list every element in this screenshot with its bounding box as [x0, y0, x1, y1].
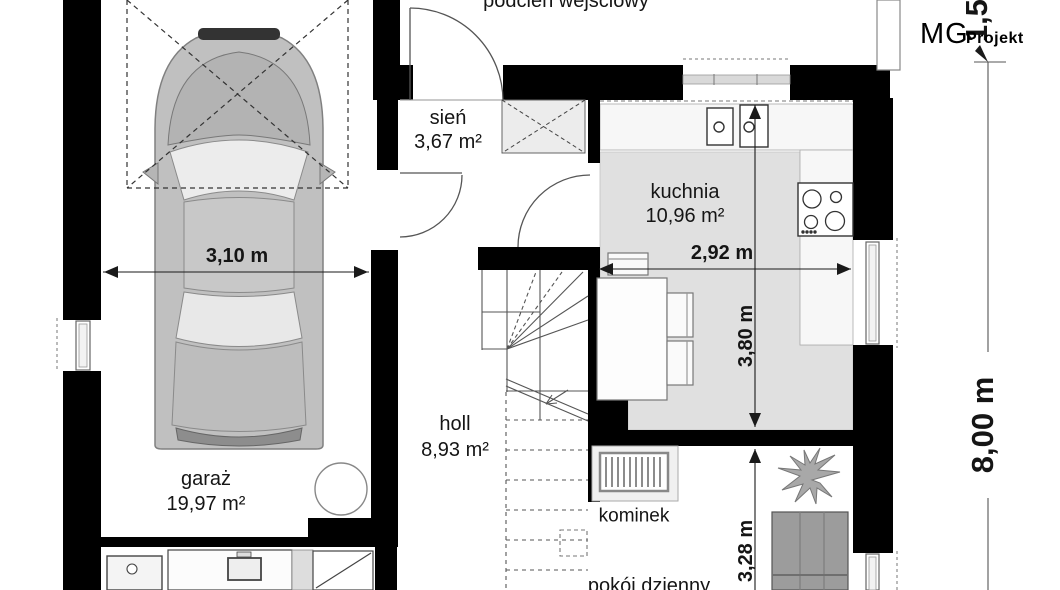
sofa: [772, 512, 848, 590]
utility-washer: [107, 556, 162, 590]
dim-kitchen-depth: 3,80 m: [735, 305, 757, 367]
room-label-kitchen: kuchnia: [651, 181, 720, 203]
logo-mg: MG: [920, 18, 969, 51]
car-windshield: [170, 140, 308, 200]
fireplace-symbol: [592, 446, 678, 501]
window-top-kitchen: [683, 59, 790, 85]
plant: [778, 448, 840, 504]
utility-counter-sink: [168, 550, 313, 590]
dashed-landing-box: [560, 530, 587, 556]
chair-top: [608, 253, 648, 275]
car-mirror-left: [143, 163, 158, 184]
logo-projekt: Projekt: [966, 30, 1024, 48]
crossed-shaft-box: [502, 100, 585, 153]
chair-right-2: [667, 341, 693, 385]
dim-kitchen-width: 2,92 m: [691, 242, 753, 264]
room-area-hall: 8,93 m²: [421, 439, 489, 461]
room-label-garage: garaż: [181, 468, 231, 490]
dim-garage-width: 3,10 m: [206, 245, 268, 267]
chair-right-1: [667, 293, 693, 337]
room-label-hall: holl: [439, 413, 470, 435]
floor-plan-drawing: [0, 0, 1060, 590]
entry-door: [400, 8, 505, 101]
stairs: [482, 270, 588, 590]
utility-shower: [313, 551, 373, 590]
car-rear-window: [176, 292, 302, 347]
kitchen-hob: [798, 183, 853, 236]
garage-door: [400, 173, 462, 237]
room-label-living: pokój dzienny: [588, 575, 710, 590]
table: [597, 278, 667, 400]
room-label-porch: podcień wejściowy: [483, 0, 649, 12]
floor-plan: podcień wejściowy sień 3,67 m² kuchnia 1…: [0, 0, 1060, 590]
porch-pillar-outline: [877, 0, 900, 70]
room-area-entry: 3,67 m²: [414, 131, 482, 153]
window-left: [57, 318, 90, 372]
dim-living-depth: 3,28 m: [735, 520, 757, 582]
room-area-garage: 19,97 m²: [167, 493, 246, 515]
car-front-stripe: [198, 28, 280, 40]
dim-house-depth: 8,00 m: [966, 377, 1000, 474]
room-area-kitchen: 10,96 m²: [646, 205, 725, 227]
kitchen-door: [518, 175, 590, 247]
label-fireplace: kominek: [599, 507, 670, 528]
car-top-view: [143, 28, 335, 449]
window-right-lower: [866, 551, 897, 590]
boiler-circle: [315, 463, 367, 515]
car-trunk: [172, 342, 306, 432]
room-label-entry: sień: [430, 107, 467, 129]
window-right-upper: [866, 238, 897, 348]
